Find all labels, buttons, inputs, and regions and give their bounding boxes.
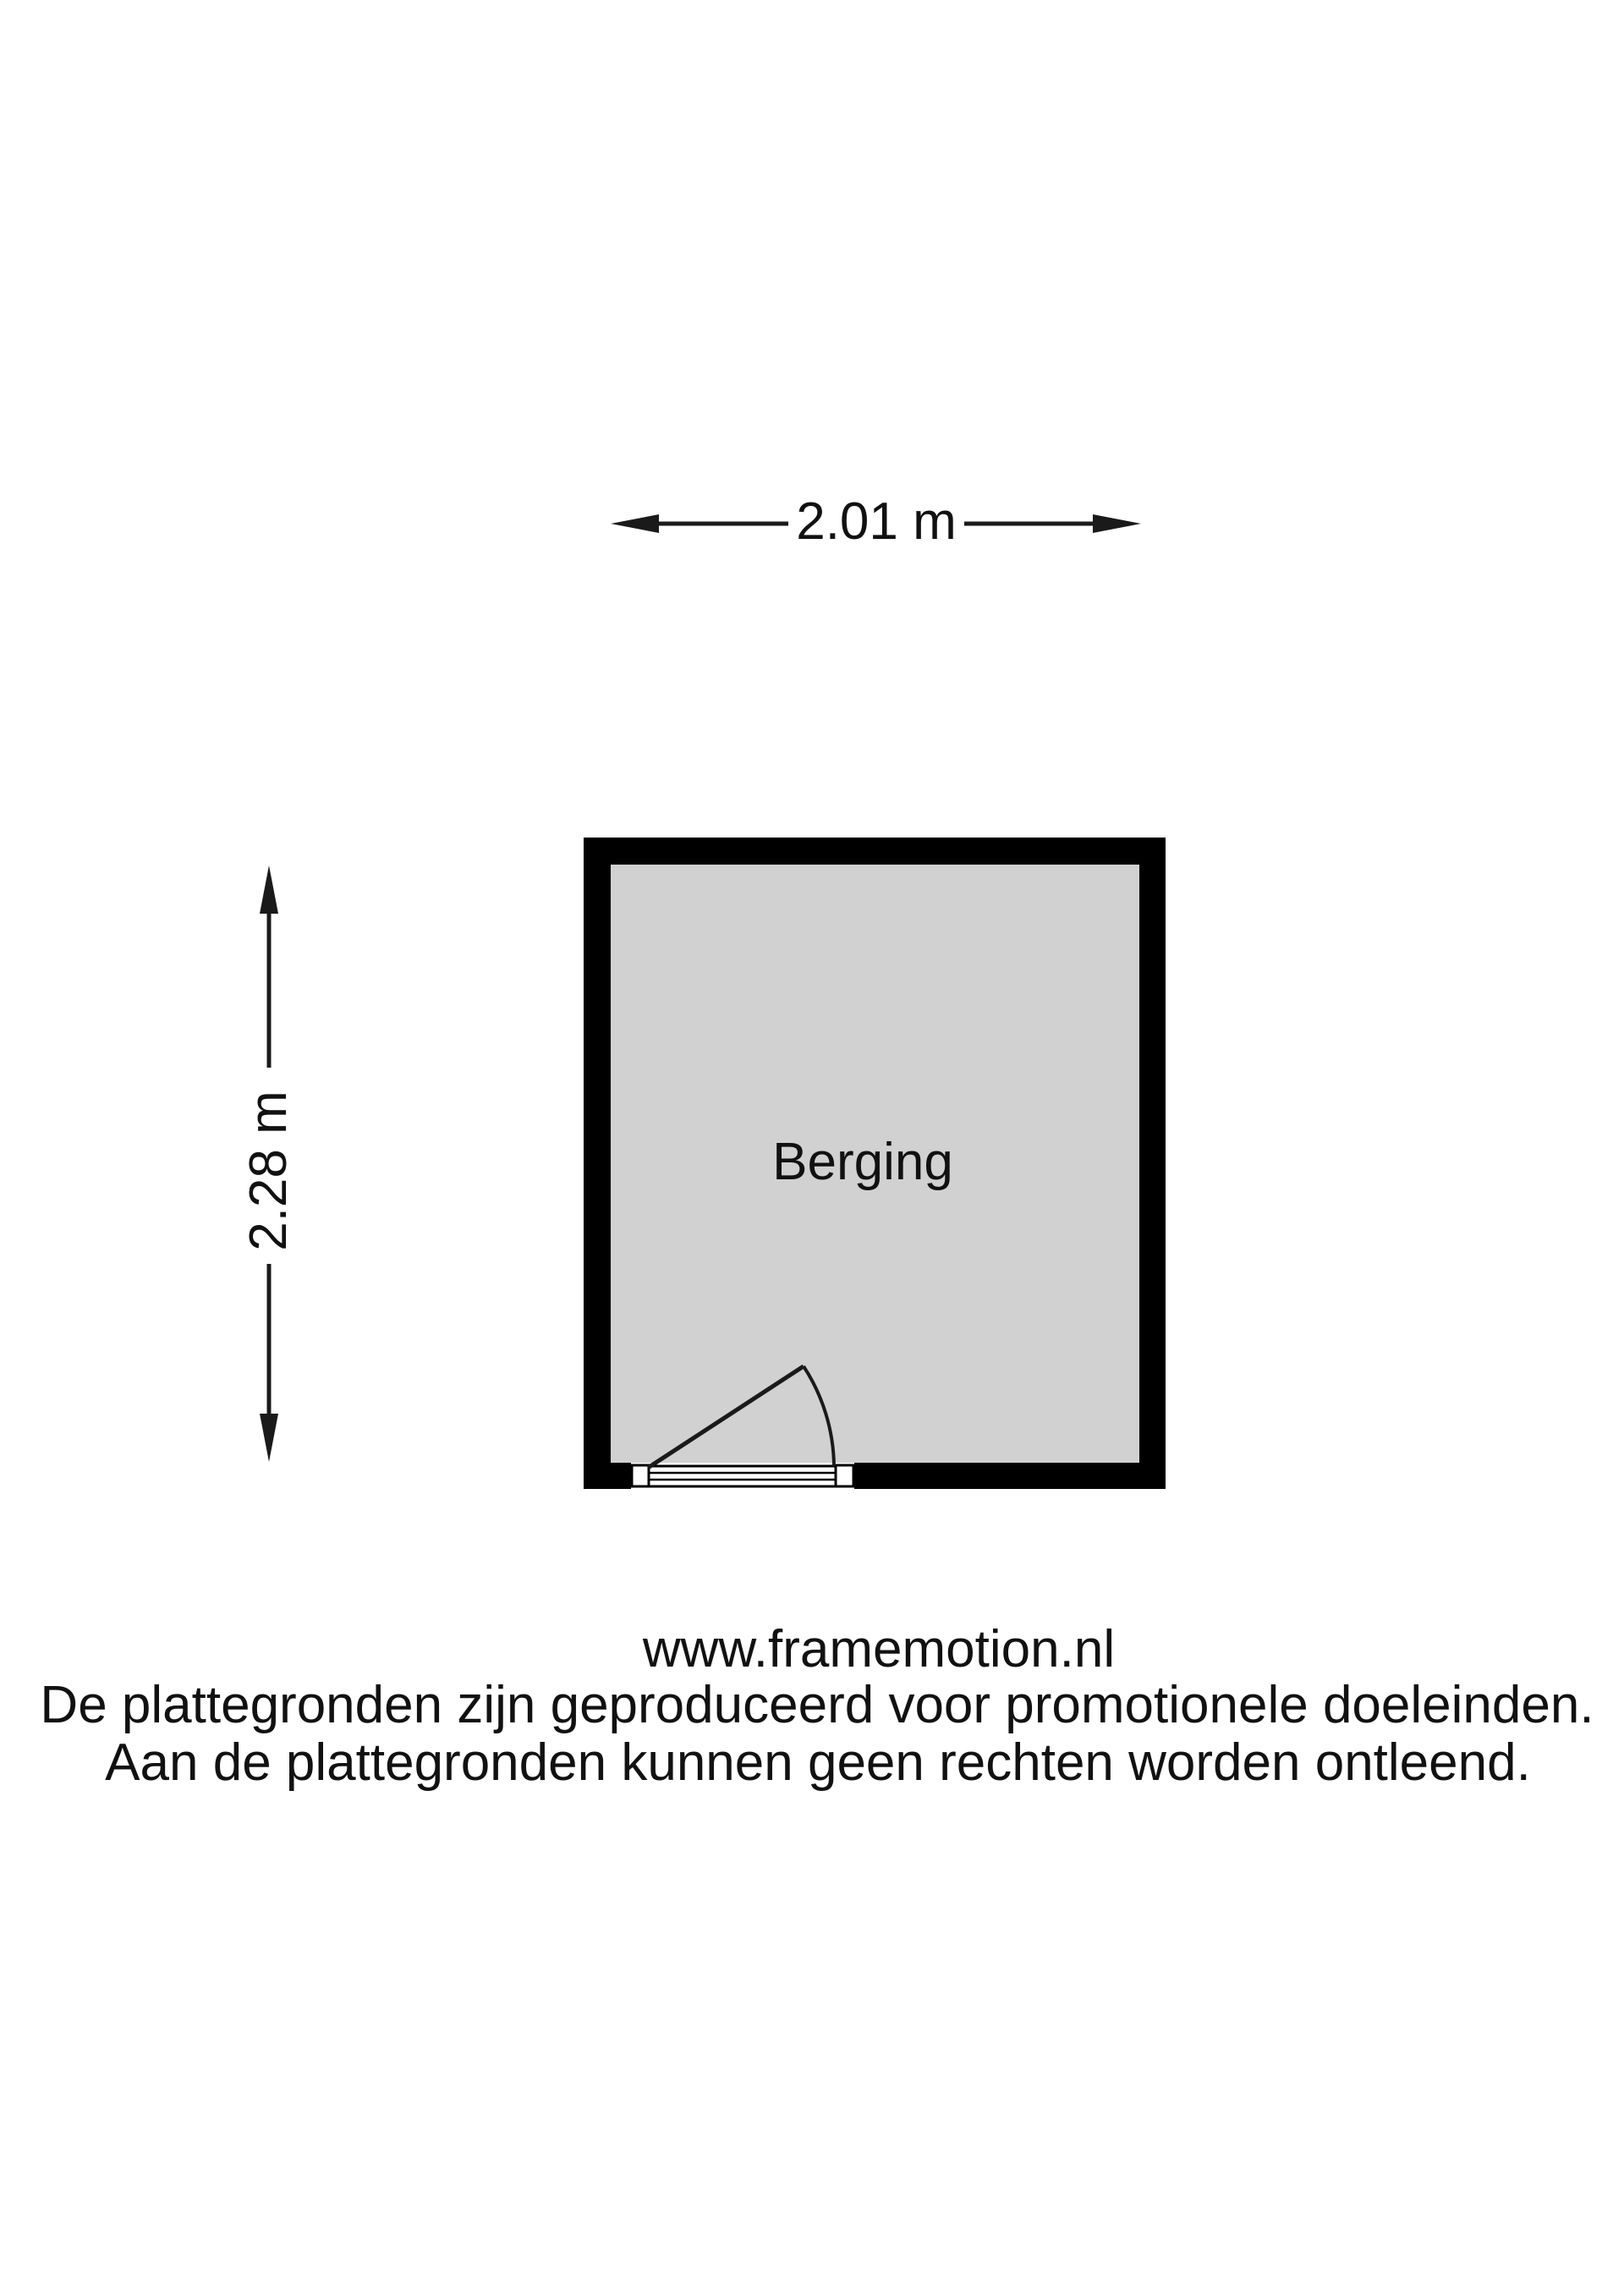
width-dimension-label: 2.01 m [796, 493, 957, 551]
room-label: Berging [772, 1134, 953, 1191]
door-jamb-right [836, 1465, 853, 1486]
disclaimer-line-1: De plattegronden zijn geproduceerd voor … [40, 1677, 1594, 1734]
floorplan-page: 2.01 m 2.28 m Berging www.framemotion.nl… [0, 0, 1624, 2296]
door-jamb-left [632, 1465, 649, 1486]
website-url: www.framemotion.nl [643, 1621, 1115, 1678]
door-sill [648, 1466, 837, 1486]
height-dimension-label: 2.28 m [240, 1090, 298, 1251]
disclaimer-line-2: Aan de plattegronden kunnen geen rechten… [105, 1734, 1531, 1792]
